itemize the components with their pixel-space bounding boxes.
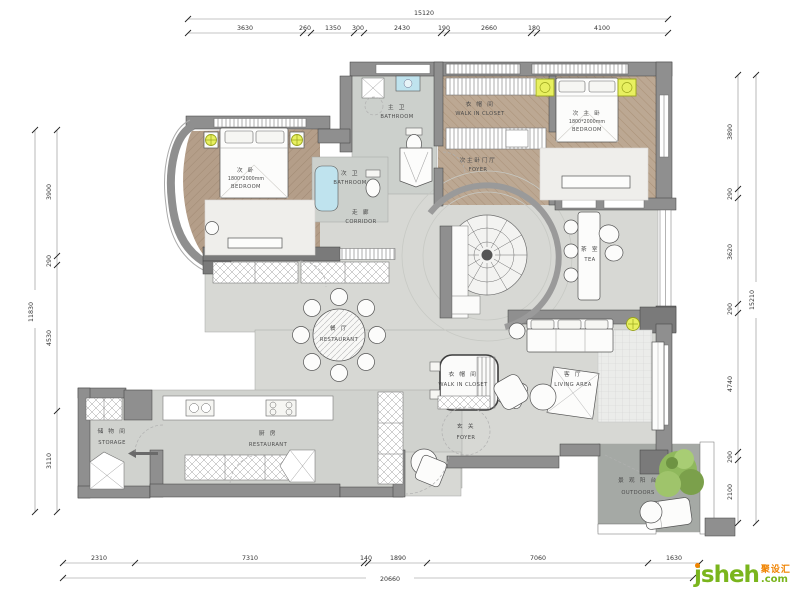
bathtub [315,166,338,211]
watermark-dot-icon [695,563,700,568]
room-label: 主 卫 [388,103,406,111]
dim-seg: 3900 [46,184,53,200]
dim-seg: 4530 [46,330,53,346]
room-label-en: OUTDOORS [621,490,654,496]
dim-bottom-total: 20660 [380,576,400,583]
dim-seg: 290 [727,188,734,200]
chair [564,220,578,234]
nightstand-lamp-icon [618,79,636,96]
dim-seg: 4740 [727,376,734,392]
room-label: 次主卧门厅 [460,156,497,164]
room-label: 次 卧 [237,166,255,174]
dim-seg: 190 [438,25,450,32]
floor-plan-page: 次 卧 1800*2000mm BEDROOM 主 卫 BATHROOM 衣 帽… [0,0,800,597]
dim-seg: 3620 [727,244,734,260]
room-label-en: BATHROOM [333,180,366,186]
dim-seg: 7310 [242,555,258,562]
dim-seg: 7060 [530,555,546,562]
room-label: 茶 室 [581,245,599,253]
dim-seg: 1890 [390,555,406,562]
room-label-en: WALK IN CLOSET [455,111,505,117]
dimension-right: 15210 3890 290 3620 290 4740 290 2100 [727,72,759,526]
nightstand-lamp-icon [536,79,554,96]
room-label: 客 厅 [564,370,582,378]
corridor-wardrobes [213,262,389,283]
dimension-bottom: 2310 7310 140 1890 7060 1630 20660 [60,555,703,583]
bench [562,176,630,188]
dim-seg: 1350 [325,25,341,32]
room-label-en: BEDROOM [231,184,261,190]
bench [228,238,282,248]
room-label-en: FOYER [457,435,476,441]
round-table [640,501,662,523]
dim-top-total: 15120 [414,10,434,17]
room-label-en: BEDROOM [572,127,602,133]
dim-seg: 260 [299,25,311,32]
chair [564,268,578,282]
room-label: 景 观 阳 台 [618,476,658,484]
dim-seg: 3890 [727,124,734,140]
ottoman [530,384,556,410]
side-table [509,323,525,339]
room-label: 走 廊 [352,208,370,216]
room-label-en: LIVING AREA [554,382,591,388]
dim-seg: 180 [528,25,540,32]
watermark-tld: .com [761,575,791,585]
room-label-en: RESTAURANT [320,337,359,343]
rug [540,148,648,200]
dimension-top: 15120 3630 260 1350 300 2430 190 2660 18… [185,10,671,36]
dim-seg: 3630 [237,25,253,32]
room-size: 1800*2000mm [228,176,264,182]
room-label-en: FOYER [469,167,488,173]
room-label: 次 主 卧 [572,109,601,117]
dining-set [293,289,386,382]
watermark-name: jsheh [694,560,759,590]
room-label-en: WALK IN CLOSET [438,382,488,388]
dim-seg: 2100 [727,484,734,500]
room-label-en: CORRIDOR [345,219,376,225]
watermark-logo: jsheh 聚设汇 .com [694,560,798,594]
room-label: 厨 房 [259,429,277,437]
room-label-en: STORAGE [98,440,126,446]
toilet [366,179,380,197]
dim-left-total: 11830 [28,302,35,322]
stair-column [482,250,493,261]
dim-seg: 3110 [46,453,53,469]
room-label: 衣 帽 间 [448,370,477,378]
dim-seg: 300 [352,25,364,32]
room-label: 餐 厅 [330,324,348,332]
room-label: 衣 帽 间 [465,100,494,108]
stool [206,222,219,235]
dim-seg: 2430 [394,25,410,32]
dim-seg: 2660 [481,25,497,32]
chair [564,244,578,258]
dim-seg: 1630 [666,555,682,562]
dim-seg: 140 [360,555,372,562]
stair-side-wall [440,226,452,318]
dim-seg: 2310 [91,555,107,562]
sofa [527,329,613,352]
toilet-tank [366,170,380,177]
dimension-left: 11830 3900 290 4530 3110 [28,127,60,515]
dim-right-total: 15210 [749,290,756,310]
room-label-en: RESTAURANT [249,442,288,448]
room-label-en: TEA [583,257,595,263]
tea-table [578,212,600,300]
dim-seg: 290 [46,255,53,267]
dim-seg: 290 [727,303,734,315]
dim-seg: 4100 [594,25,610,32]
room-label: 玄 关 [457,422,475,430]
room-size: 1800*2000mm [569,119,605,125]
dim-seg: 290 [727,451,734,463]
room-label-en: BATHROOM [380,114,413,120]
room-label: 储 物 间 [97,427,126,435]
toilet-tank [406,128,422,135]
floor-plan-canvas: 次 卧 1800*2000mm BEDROOM 主 卫 BATHROOM 衣 帽… [0,0,800,597]
room-label: 次 卫 [341,169,359,177]
